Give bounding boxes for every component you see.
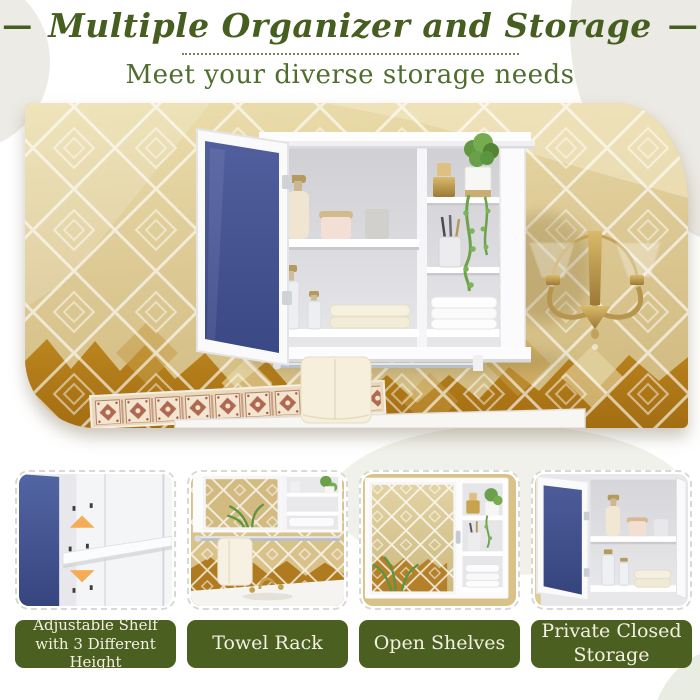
feature-card-towel-rack	[187, 470, 348, 610]
page: — Multiple Organizer and Storage — Meet …	[0, 0, 700, 700]
feature-label-adjustable-shelf: Adjustable Shelf with 3 Different Height	[15, 620, 176, 668]
mirror-door	[197, 129, 292, 365]
towel-bar	[194, 535, 340, 542]
feature-label-towel-rack: Towel Rack	[187, 620, 348, 668]
feature-labels: Adjustable Shelf with 3 Different Height…	[15, 620, 693, 668]
header: — Multiple Organizer and Storage — Meet …	[0, 8, 700, 90]
page-subtitle: Meet your diverse storage needs	[0, 60, 700, 90]
feature-card-open-shelves	[359, 470, 520, 610]
feature-card-adjustable-shelf	[15, 470, 176, 610]
hanging-towel	[301, 357, 371, 423]
feature-label-open-shelves: Open Shelves	[359, 620, 520, 668]
door-handle	[456, 531, 461, 544]
title-dash-right: —	[668, 11, 698, 41]
adjustable-shelf-image	[19, 474, 172, 606]
hanging-towel	[218, 538, 252, 585]
feature-card-closed-storage	[531, 470, 692, 610]
gray-cup	[365, 209, 389, 239]
mirror-door	[537, 476, 590, 600]
towel-rack-image	[191, 474, 344, 606]
feature-thumbnails	[15, 470, 693, 610]
main-product-image	[25, 103, 688, 428]
title-row: — Multiple Organizer and Storage —	[0, 8, 700, 44]
feature-label-closed-storage: Private Closed Storage	[531, 620, 692, 668]
closed-storage-image	[535, 474, 688, 606]
folded-towels-right	[431, 297, 497, 329]
toothbrush-cup	[439, 215, 461, 267]
bathroom-scene	[25, 103, 688, 428]
title-dash-left: —	[2, 11, 32, 41]
candle-jar	[319, 211, 353, 239]
open-shelves-image	[363, 474, 516, 606]
storage-cabinet	[255, 132, 535, 363]
page-title: Multiple Organizer and Storage	[48, 8, 652, 44]
folded-towels-left	[330, 305, 410, 328]
dotted-divider	[182, 53, 519, 55]
